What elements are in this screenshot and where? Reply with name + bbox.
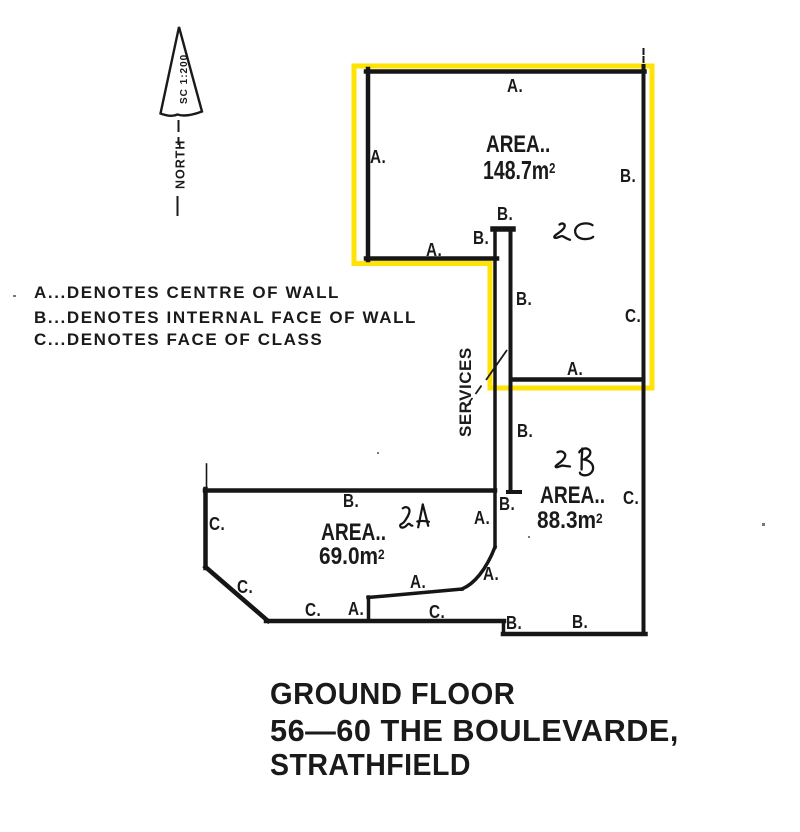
svg-text:NORTH: NORTH <box>174 140 188 189</box>
svg-text:SC 1:200: SC 1:200 <box>179 54 190 104</box>
